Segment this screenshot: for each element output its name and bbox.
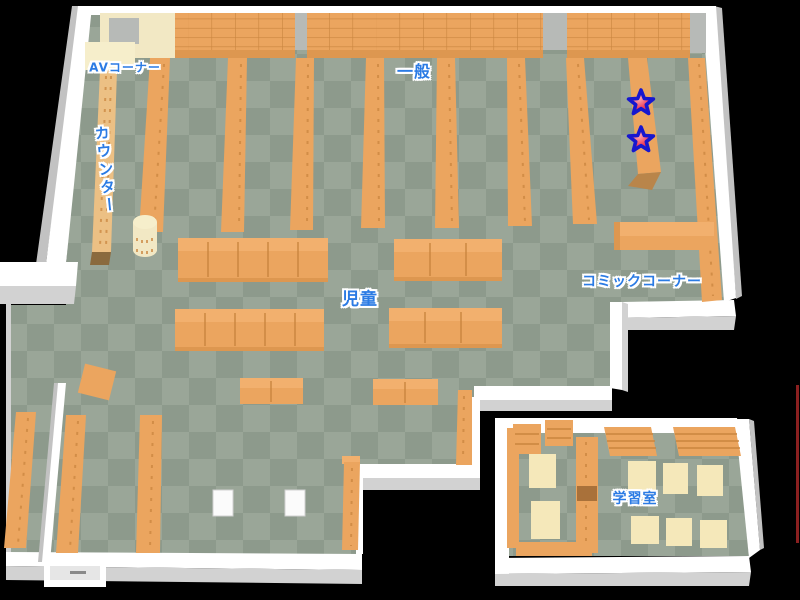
- star-marker-1[interactable]: [621, 83, 661, 123]
- comic-corner-shelves: [614, 222, 714, 250]
- floor-map-graphic: [0, 0, 800, 600]
- wall-shelf: [175, 13, 295, 50]
- study-table: [700, 520, 727, 548]
- small-shelf: [373, 379, 438, 405]
- study-table: [663, 463, 688, 494]
- star-marker-2[interactable]: [621, 120, 661, 160]
- study-table: [531, 501, 560, 539]
- low-shelf: [175, 309, 324, 351]
- low-shelf: [394, 239, 502, 281]
- area-label-study-room: 学習室: [613, 488, 658, 508]
- shelf-unit: [545, 420, 573, 446]
- study-table: [529, 454, 556, 488]
- wall-shelf: [307, 13, 543, 50]
- wall-shelf: [567, 13, 690, 50]
- area-label-children: 児童: [342, 285, 378, 310]
- pillar: [690, 13, 706, 53]
- white-table: [213, 490, 233, 516]
- star-icon: [621, 83, 661, 123]
- low-shelf: [178, 238, 328, 282]
- bookshelf-aisle: [136, 415, 162, 553]
- pillar: [295, 13, 307, 50]
- pillar: [543, 13, 567, 50]
- shelf-unit: [513, 424, 541, 454]
- low-shelf: [389, 308, 502, 348]
- star-icon: [621, 120, 661, 160]
- map-edge-line-red: [796, 385, 799, 543]
- comic-corner-wall: [622, 300, 736, 318]
- entrance-door: [44, 560, 106, 587]
- library-floor-map: AVコーナー カウンター 一般 児童 コミックコーナー 学習室: [0, 0, 800, 600]
- study-table: [666, 518, 692, 546]
- small-shelf: [240, 378, 303, 404]
- study-table: [697, 465, 723, 496]
- white-table: [285, 490, 305, 516]
- area-label-av-corner: AVコーナー: [89, 59, 161, 76]
- bookshelf-aisle: [435, 58, 459, 228]
- low-shelf: [516, 542, 592, 556]
- entrance-wall: [0, 262, 78, 286]
- study-table: [631, 516, 659, 544]
- area-label-general: 一般: [397, 58, 431, 82]
- area-label-comic-corner: コミックコーナー: [582, 271, 702, 291]
